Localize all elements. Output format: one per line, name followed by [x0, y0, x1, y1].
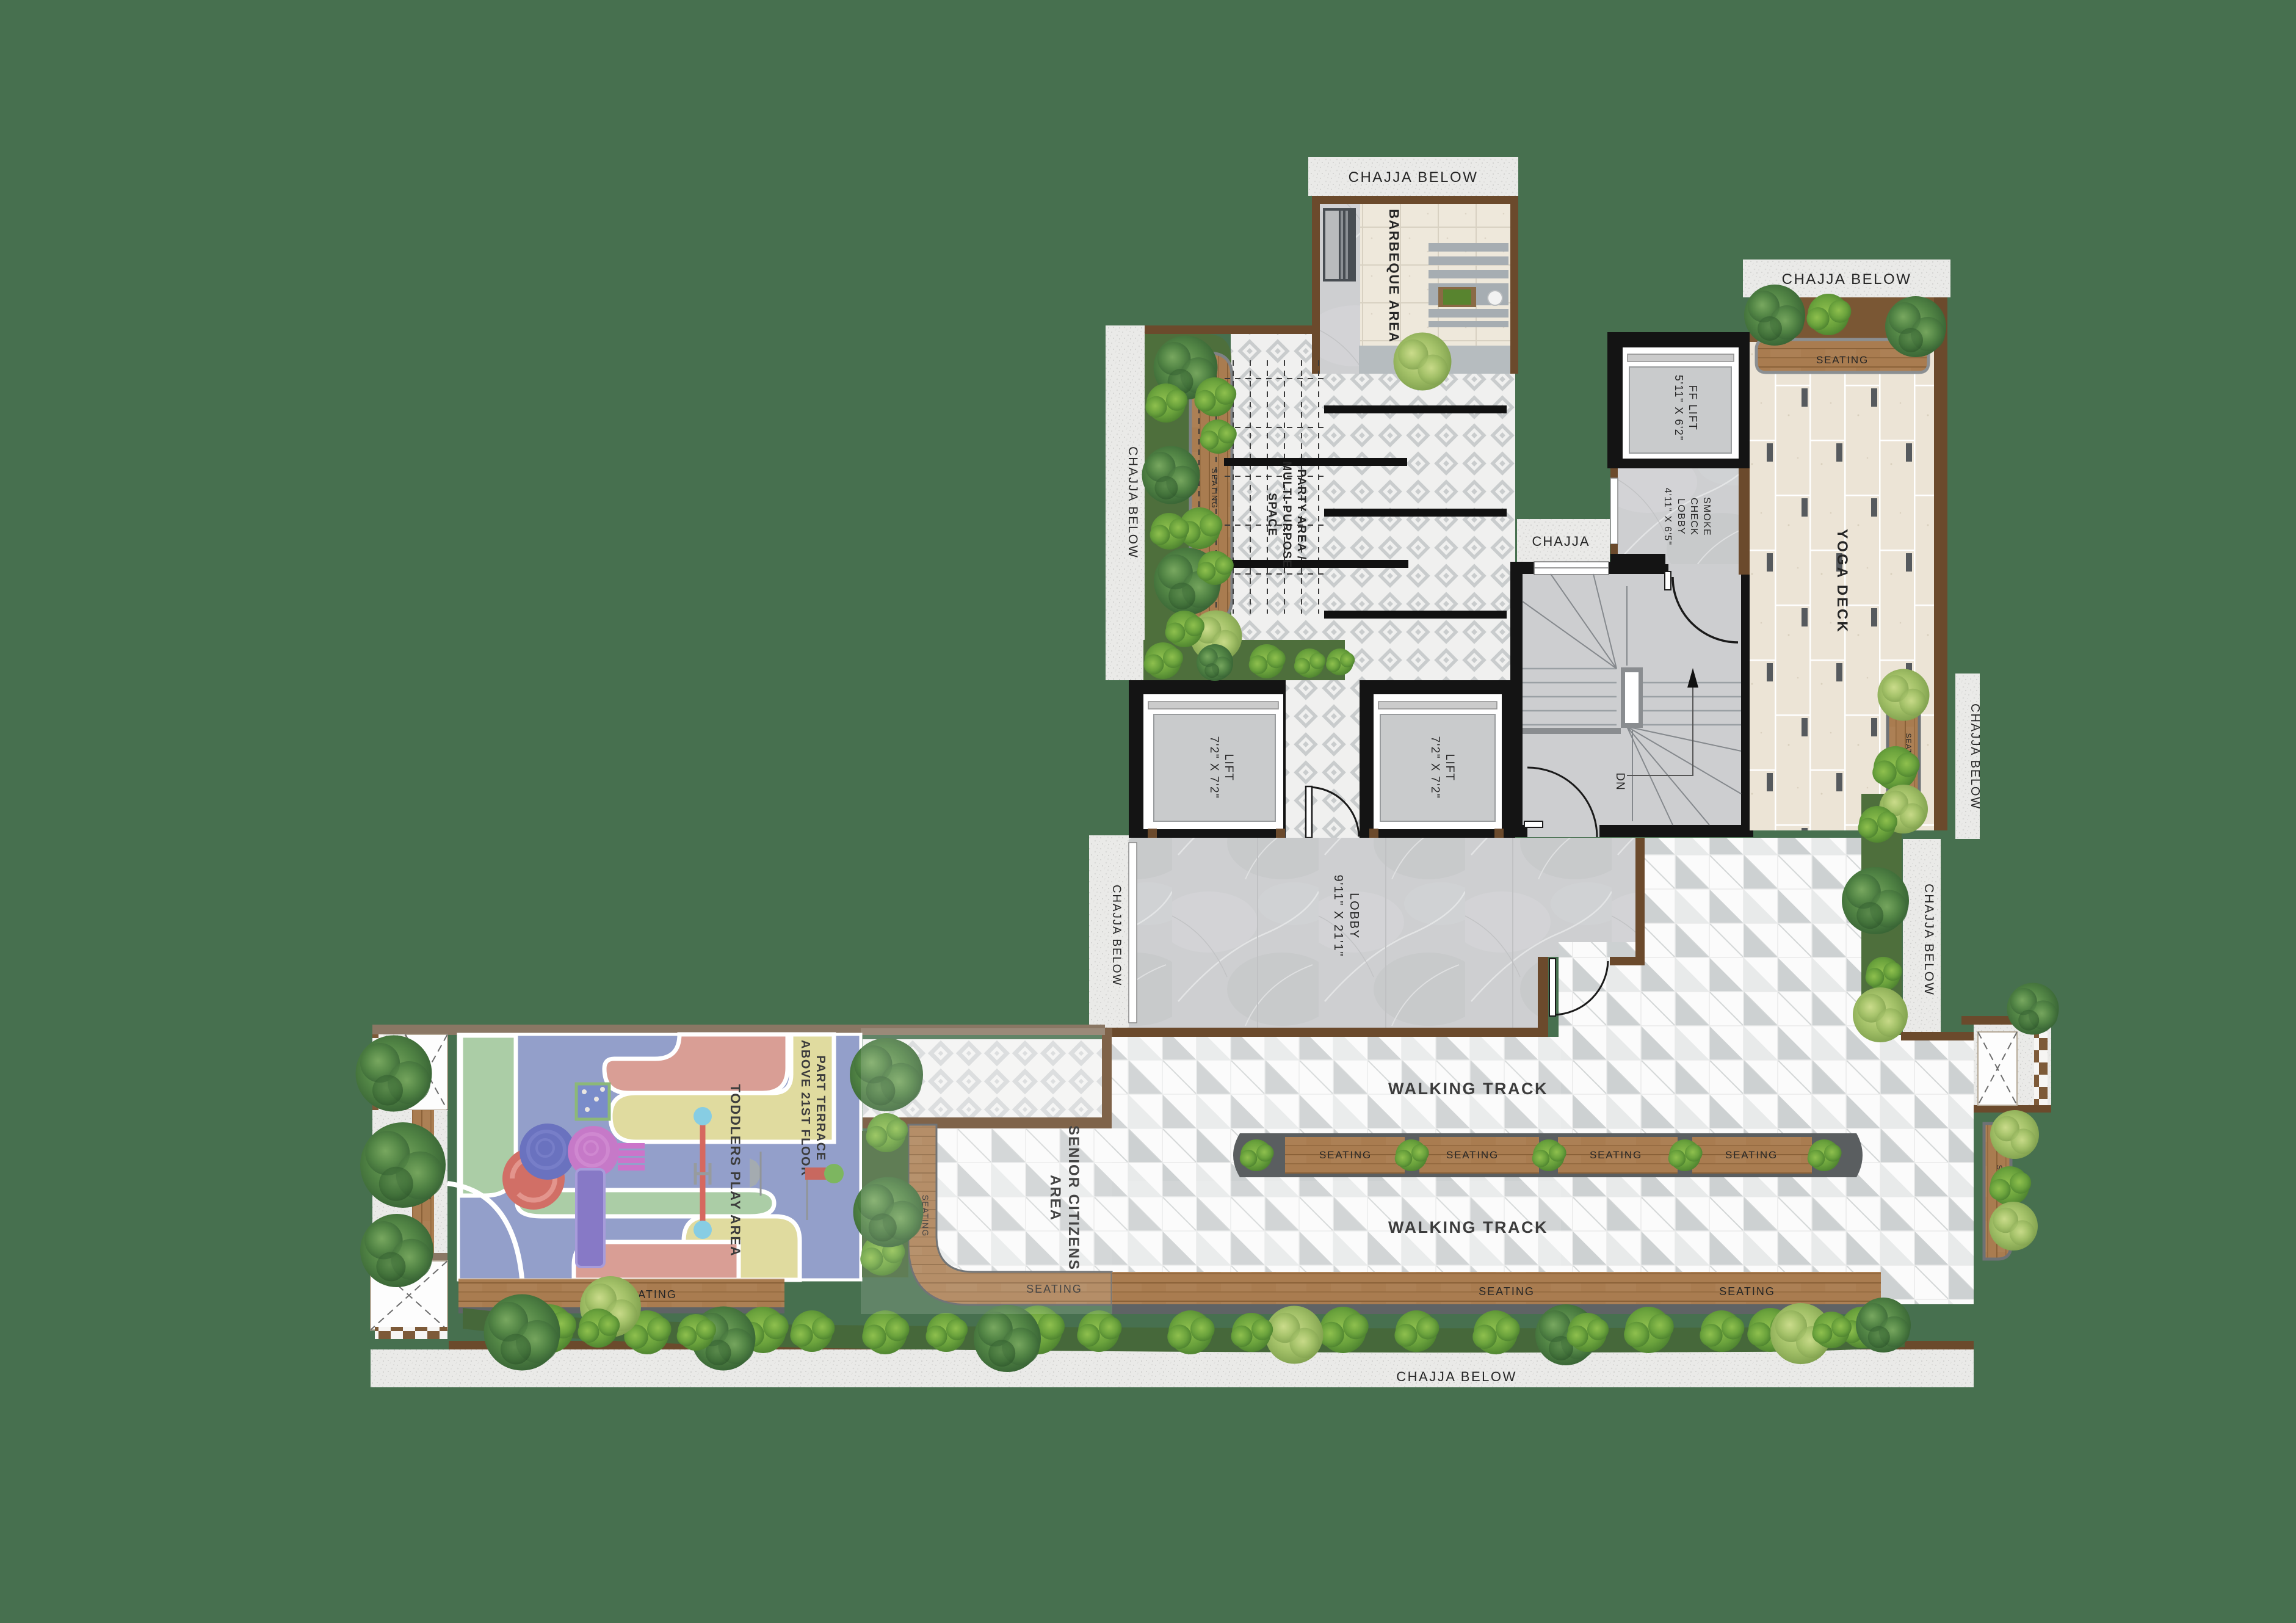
svg-text:CHAJJA BELOW: CHAJJA BELOW — [1349, 169, 1479, 186]
svg-text:SEATING: SEATING — [1446, 1149, 1499, 1161]
svg-text:MULTI-PURPOSE: MULTI-PURPOSE — [1280, 461, 1293, 568]
svg-text:CHAJJA: CHAJJA — [1532, 534, 1590, 549]
svg-text:SMOKE: SMOKE — [1701, 497, 1712, 536]
svg-text:CHAJJA BELOW: CHAJJA BELOW — [1110, 885, 1123, 986]
svg-text:LIFT: LIFT — [1222, 753, 1235, 781]
svg-text:BARBEQUE AREA: BARBEQUE AREA — [1386, 209, 1402, 343]
svg-text:LOBBY: LOBBY — [1676, 498, 1686, 534]
svg-text:CHAJJA BELOW: CHAJJA BELOW — [1968, 703, 1982, 810]
svg-text:DN: DN — [1613, 772, 1626, 790]
svg-text:CHAJJA BELOW: CHAJJA BELOW — [1126, 446, 1140, 559]
svg-text:SEATING: SEATING — [1590, 1149, 1642, 1161]
svg-text:7'2" X 7'2": 7'2" X 7'2" — [1429, 736, 1441, 799]
svg-text:PARTY AREA /: PARTY AREA / — [1295, 470, 1308, 561]
svg-text:CHAJJA BELOW: CHAJJA BELOW — [1922, 884, 1936, 996]
svg-text:4'11" X 6'5": 4'11" X 6'5" — [1662, 488, 1673, 546]
svg-text:SEATING: SEATING — [1725, 1149, 1778, 1161]
svg-text:YOGA DECK: YOGA DECK — [1834, 529, 1850, 633]
svg-text:LIFT: LIFT — [1443, 753, 1456, 781]
svg-text:SEATING: SEATING — [1816, 354, 1869, 366]
svg-text:LOBBY: LOBBY — [1347, 893, 1361, 939]
svg-text:SEATING: SEATING — [1210, 468, 1219, 509]
svg-text:SEATING: SEATING — [1319, 1149, 1372, 1161]
svg-text:CHECK: CHECK — [1689, 498, 1699, 536]
svg-text:SEATING: SEATING — [1719, 1285, 1775, 1298]
svg-text:FF LIFT: FF LIFT — [1687, 385, 1699, 431]
svg-text:5'11" X 6'2": 5'11" X 6'2" — [1673, 375, 1685, 441]
svg-text:9'11" X 21'1": 9'11" X 21'1" — [1331, 875, 1345, 957]
svg-text:CHAJJA BELOW: CHAJJA BELOW — [1396, 1369, 1516, 1384]
svg-text:7'2" X 7'2": 7'2" X 7'2" — [1208, 736, 1220, 799]
svg-text:SPACE: SPACE — [1266, 493, 1278, 537]
svg-text:CHAJJA BELOW: CHAJJA BELOW — [1782, 271, 1912, 288]
svg-text:SEATING: SEATING — [1479, 1285, 1535, 1298]
